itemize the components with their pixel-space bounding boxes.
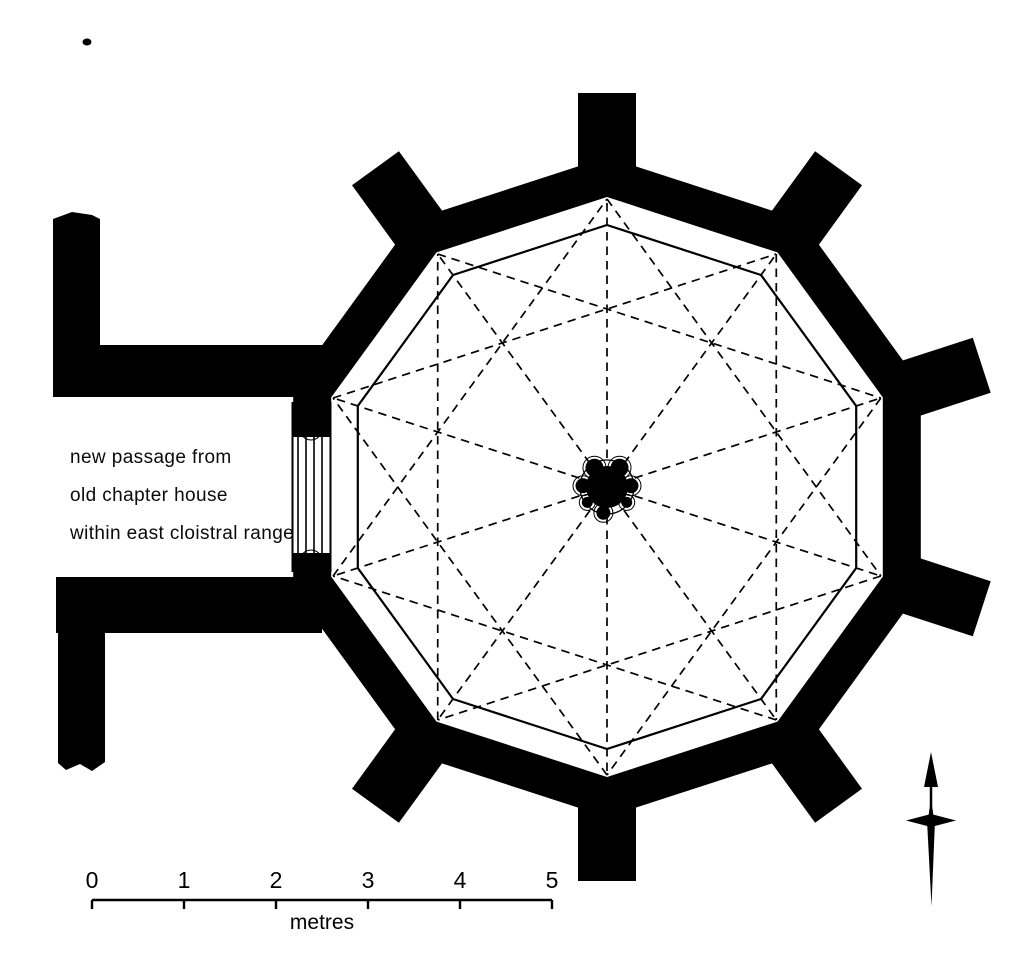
- buttress: [578, 93, 636, 172]
- north-arrow: [906, 752, 956, 906]
- pier-lobe: [576, 478, 591, 493]
- annotation-line-2: old chapter house: [70, 477, 294, 515]
- scale-tick-label-5: 5: [546, 867, 559, 893]
- scan-speck: [83, 39, 92, 46]
- scale-tick-label-1: 1: [178, 867, 191, 893]
- diagonal-rib: [438, 510, 590, 720]
- scale-tick-label-0: 0: [86, 867, 99, 893]
- scale-bar: 012345metres: [86, 867, 559, 934]
- pier-lobe: [621, 497, 632, 508]
- diagonal-rib: [333, 398, 579, 478]
- diagonal-rib: [635, 398, 881, 478]
- buttress: [578, 802, 636, 881]
- scale-tick-label-2: 2: [270, 867, 283, 893]
- pier-lobe: [596, 506, 610, 520]
- tierceron-chord-rib: [607, 199, 881, 576]
- scale-tick-label-4: 4: [454, 867, 467, 893]
- scale-tick-label-3: 3: [362, 867, 375, 893]
- pier-lobe: [582, 497, 593, 508]
- north-arrow-cross: [906, 814, 956, 827]
- pier-lobe: [623, 478, 638, 493]
- jamb-shaft-knob: [303, 421, 319, 437]
- passage-annotation: new passage from old chapter house withi…: [70, 439, 294, 553]
- annotation-line-3: within east cloistral range: [70, 515, 294, 553]
- annotation-line-1: new passage from: [70, 439, 294, 477]
- diagonal-rib: [635, 496, 881, 576]
- pier-lobe: [585, 459, 603, 477]
- tierceron-chord-rib: [607, 398, 881, 775]
- diagonal-rib: [333, 496, 579, 576]
- north-arrow-tail-spike: [927, 821, 935, 907]
- east-range-wall-north: [53, 212, 100, 397]
- tierceron-chord-rib: [333, 199, 607, 576]
- east-range-wall-south: [58, 577, 105, 771]
- chapter-house-plan-page: 012345metres new passage from old chapte…: [0, 0, 1024, 979]
- scale-unit-label: metres: [290, 911, 354, 934]
- diagonal-rib: [438, 254, 590, 464]
- central-pier: [573, 456, 641, 522]
- jamb-shaft-knob: [303, 553, 319, 569]
- diagonal-rib: [624, 510, 776, 720]
- tierceron-chord-rib: [333, 398, 607, 775]
- diagonal-rib: [624, 254, 776, 464]
- pier-lobe: [611, 459, 629, 477]
